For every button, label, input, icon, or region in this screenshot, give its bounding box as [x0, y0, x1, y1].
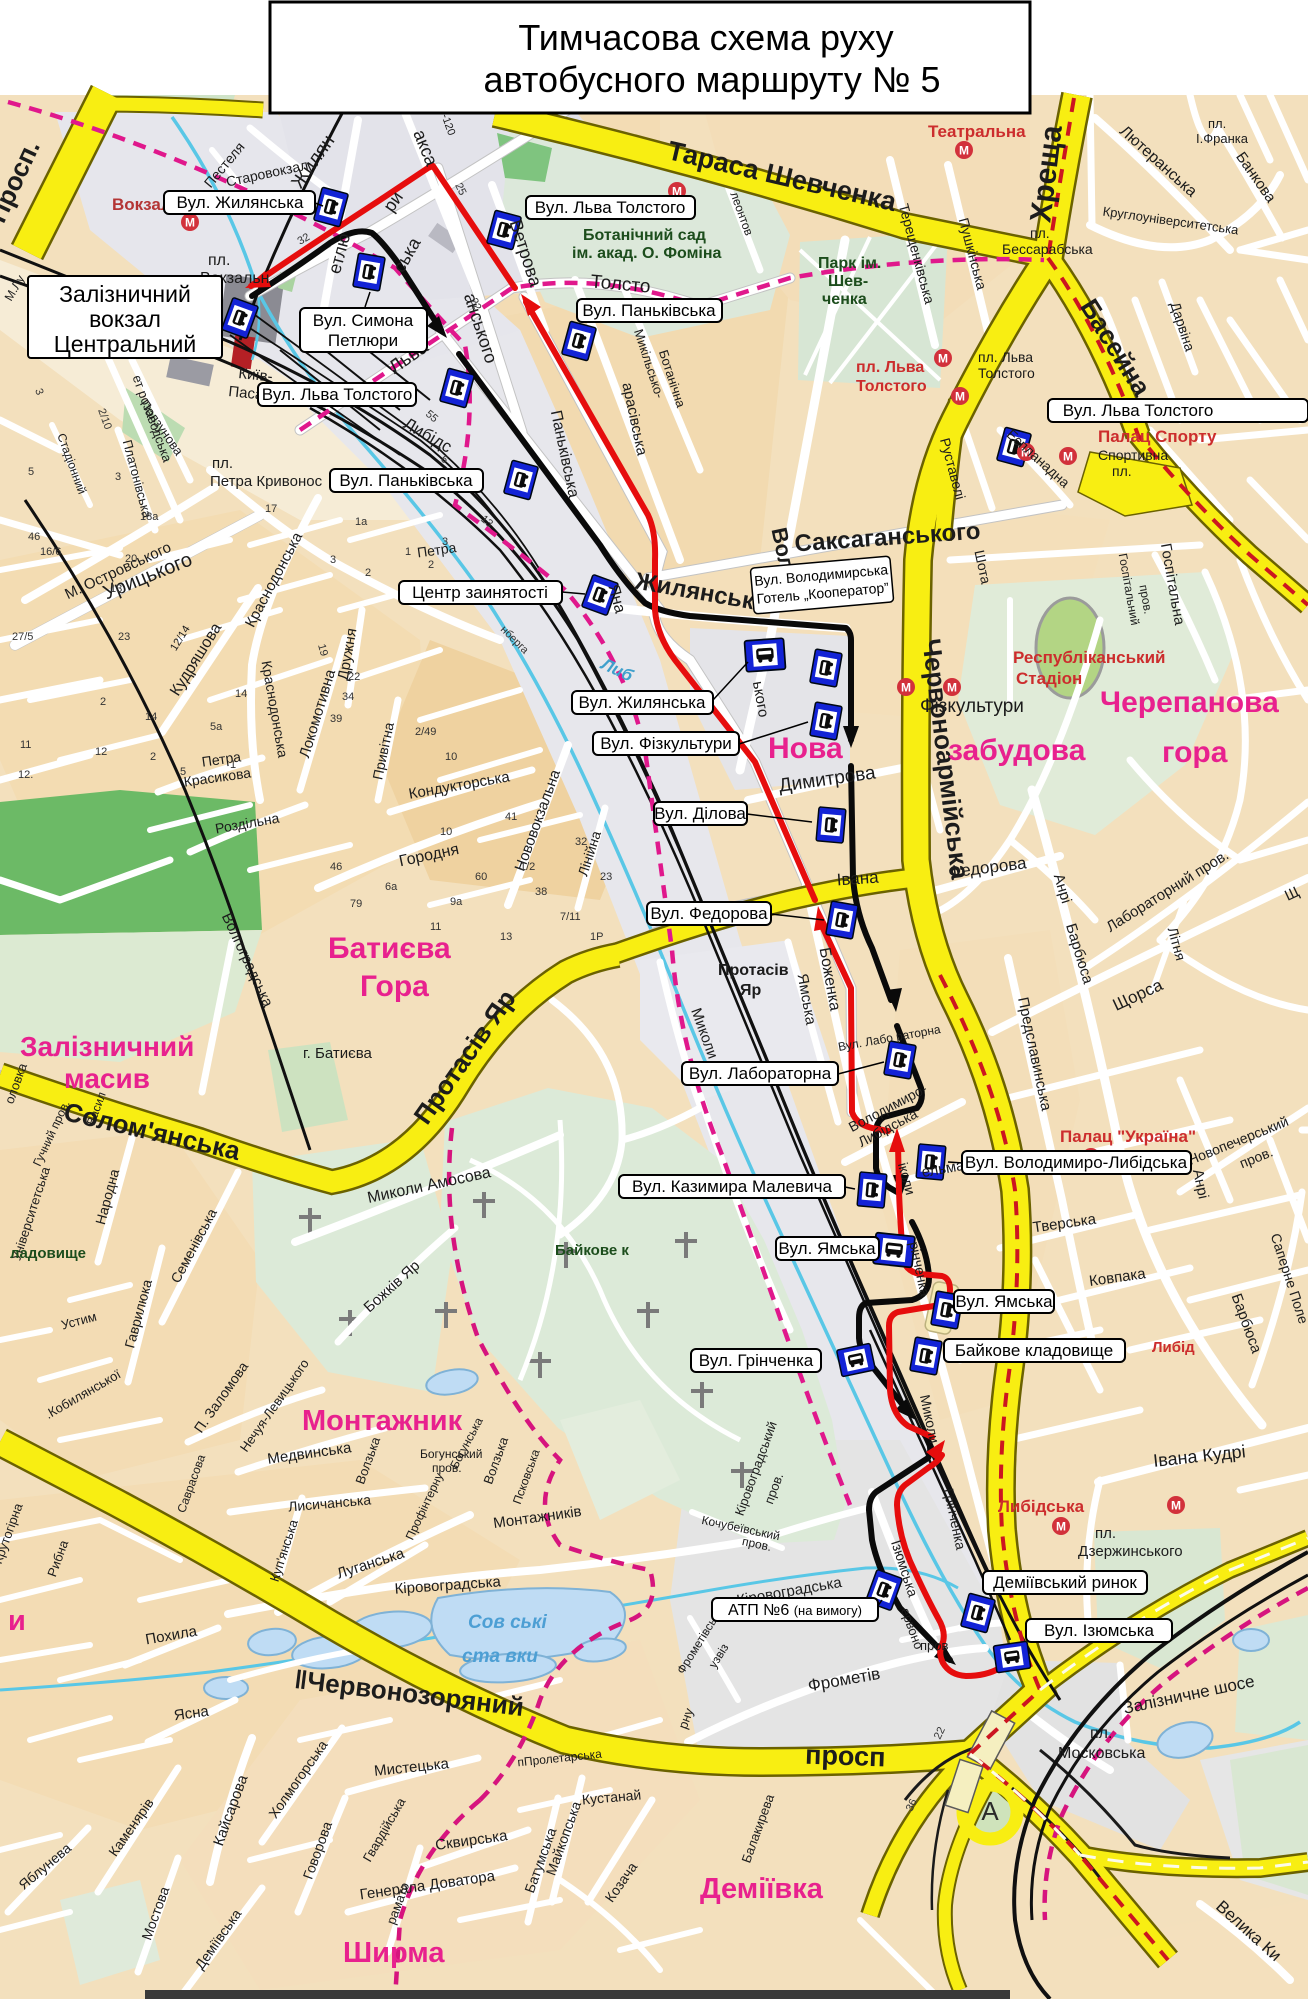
svg-text:АТП №6 (на вимогу): АТП №6 (на вимогу) [728, 1602, 862, 1619]
svg-text:ім. акад. О. Фоміна: ім. акад. О. Фоміна [572, 245, 722, 262]
svg-text:2/49: 2/49 [415, 726, 436, 738]
svg-text:Байкове кладовище: Байкове кладовище [955, 1341, 1113, 1360]
svg-text:10: 10 [445, 751, 457, 763]
svg-text:Толстого: Толстого [978, 365, 1035, 381]
svg-text:46: 46 [330, 861, 342, 873]
svg-text:Вул. Льва Толстого: Вул. Льва Толстого [262, 385, 413, 404]
svg-text:20: 20 [125, 553, 137, 565]
svg-text:ладовище: ладовище [10, 1245, 86, 1262]
svg-text:Черепанова: Черепанова [1100, 686, 1279, 719]
svg-text:Московська: Московська [1058, 1745, 1145, 1762]
svg-text:Монтажник: Монтажник [302, 1405, 463, 1437]
svg-text:Центр заинятості: Центр заинятості [412, 583, 548, 602]
svg-text:1/2: 1/2 [520, 861, 535, 873]
svg-text:Вул. Федорова: Вул. Федорова [650, 904, 768, 923]
svg-text:Либід: Либід [1152, 1339, 1195, 1356]
svg-text:пл.: пл. [208, 252, 230, 269]
svg-text:6а: 6а [385, 881, 398, 893]
svg-text:17: 17 [265, 503, 277, 515]
svg-text:1а: 1а [355, 516, 368, 528]
svg-text:Нова: Нова [768, 732, 843, 765]
svg-text:вокзал: вокзал [89, 306, 161, 332]
svg-text:34: 34 [342, 691, 354, 703]
svg-text:масив: масив [64, 1063, 150, 1094]
svg-text:Тимчасова схема руху: Тимчасова схема руху [518, 17, 893, 58]
svg-text:Театральна: Театральна [928, 122, 1026, 141]
svg-text:пров: пров [920, 1638, 948, 1653]
svg-text:Деміївка: Деміївка [700, 1873, 824, 1905]
svg-text:Вул. Ділова: Вул. Ділова [654, 804, 746, 823]
svg-text:Батиєва: Батиєва [328, 932, 451, 965]
svg-text:14: 14 [145, 711, 157, 723]
svg-text:1: 1 [230, 759, 236, 771]
svg-text:пл. Льва: пл. Льва [856, 359, 924, 376]
svg-text:Деміївський ринок: Деміївський ринок [993, 1573, 1137, 1592]
svg-text:32: 32 [575, 836, 587, 848]
svg-text:Парк ім.: Парк ім. [818, 255, 881, 272]
svg-text:автобусного маршруту № 5: автобусного маршруту № 5 [484, 59, 941, 100]
svg-text:12: 12 [95, 746, 107, 758]
svg-text:Гора: Гора [360, 970, 429, 1003]
svg-text:Вул. Жилянська: Вул. Жилянська [177, 193, 305, 212]
svg-text:9а: 9а [450, 896, 463, 908]
svg-text:Фізкультури: Фізкультури [920, 696, 1024, 717]
svg-text:5: 5 [180, 766, 186, 778]
svg-text:Либідська: Либідська [998, 1497, 1085, 1516]
svg-text:79: 79 [350, 898, 362, 910]
svg-text:пл.: пл. [212, 455, 233, 472]
svg-text:Петра Кривонос: Петра Кривонос [210, 473, 323, 490]
svg-text:10: 10 [440, 826, 452, 838]
svg-text:Шев-: Шев- [828, 273, 868, 290]
svg-text:Стадіон: Стадіон [1016, 669, 1082, 688]
svg-text:забудова: забудова [948, 734, 1086, 767]
svg-text:5: 5 [28, 466, 34, 478]
svg-text:Вул. Ямська: Вул. Ямська [778, 1239, 876, 1258]
svg-text:39: 39 [330, 713, 342, 725]
svg-text:Бессарабська: Бессарабська [1002, 241, 1093, 257]
svg-text:пл.: пл. [1095, 1525, 1116, 1542]
svg-text:ста вки: ста вки [462, 1646, 538, 1667]
svg-text:18а: 18а [140, 511, 159, 523]
svg-text:16/6: 16/6 [40, 546, 61, 558]
svg-text:Вул. Грінченка: Вул. Грінченка [699, 1351, 814, 1370]
svg-text:13: 13 [500, 931, 512, 943]
svg-text:Вул. Жилянська: Вул. Жилянська [579, 693, 707, 712]
svg-text:Вул. Ізюмська: Вул. Ізюмська [1044, 1621, 1155, 1640]
svg-text:3: 3 [442, 536, 448, 548]
svg-text:Вул. Паньківська: Вул. Паньківська [582, 301, 716, 320]
svg-text:І.Франка: І.Франка [1196, 131, 1249, 146]
svg-text:Залізничний: Залізничний [20, 1031, 194, 1062]
svg-text:и: и [8, 1605, 26, 1637]
svg-text:46: 46 [28, 531, 40, 543]
svg-text:2: 2 [365, 567, 371, 579]
svg-text:Вокзал: Вокзал [112, 195, 172, 214]
svg-text:просп: просп [805, 1740, 886, 1773]
svg-text:Петлюри: Петлюри [328, 331, 398, 350]
svg-text:38: 38 [535, 886, 547, 898]
svg-text:7/11: 7/11 [560, 911, 581, 923]
svg-text:г. Батиєва: г. Батиєва [303, 1045, 373, 1062]
svg-text:14: 14 [235, 688, 247, 700]
svg-text:1: 1 [405, 546, 411, 558]
svg-text:1Р: 1Р [590, 931, 603, 943]
svg-text:Вул. Володимиро-Либідська: Вул. Володимиро-Либідська [965, 1153, 1188, 1172]
svg-text:Вул. Фізкультури: Вул. Фізкультури [600, 734, 732, 753]
svg-text:гора: гора [1162, 736, 1228, 769]
svg-text:Залізничний: Залізничний [59, 281, 191, 307]
svg-text:Вул. Симона: Вул. Симона [313, 311, 414, 330]
svg-text:пл. Льва: пл. Льва [978, 349, 1033, 365]
svg-text:13: 13 [110, 583, 122, 595]
svg-text:22: 22 [348, 671, 360, 683]
svg-text:Сов ські: Сов ські [468, 1612, 548, 1633]
svg-text:Ширма: Ширма [343, 1937, 445, 1969]
svg-text:Вул. Паньківська: Вул. Паньківська [339, 471, 473, 490]
svg-text:60: 60 [475, 871, 487, 883]
svg-text:Вул. Льва Толстого: Вул. Льва Толстого [1063, 401, 1214, 420]
svg-text:Івана: Івана [836, 868, 880, 890]
svg-text:Вул. Лабораторна: Вул. Лабораторна [689, 1064, 832, 1083]
svg-text:12.: 12. [18, 769, 33, 781]
svg-text:Ботанічний сад: Ботанічний сад [583, 227, 706, 244]
svg-text:3: 3 [330, 554, 336, 566]
svg-text:27/5: 27/5 [12, 631, 33, 643]
svg-text:11: 11 [20, 739, 31, 751]
svg-text:Палац Спорту: Палац Спорту [1098, 427, 1217, 446]
svg-text:Байкове к: Байкове к [555, 1242, 629, 1259]
svg-text:Толстого: Толстого [856, 378, 927, 395]
svg-text:23: 23 [600, 871, 612, 883]
svg-text:Вул. Ямська: Вул. Ямська [955, 1292, 1053, 1311]
svg-text:41: 41 [505, 811, 517, 823]
svg-text:Спортивна: Спортивна [1098, 447, 1168, 463]
svg-text:2: 2 [100, 696, 106, 708]
svg-text:Вул. Льва Толстого: Вул. Льва Толстого [535, 198, 686, 217]
svg-text:А: А [981, 1796, 999, 1826]
svg-text:Дзержинського: Дзержинського [1078, 1543, 1183, 1560]
svg-text:Яр: Яр [740, 982, 762, 999]
svg-text:Палац "Україна": Палац "Україна" [1060, 1127, 1196, 1146]
svg-text:ченка: ченка [822, 291, 867, 308]
svg-text:Вул. Казимира Малевича: Вул. Казимира Малевича [632, 1177, 832, 1196]
svg-text:Республіканський: Республіканський [1013, 648, 1165, 667]
svg-text:пл.: пл. [1208, 116, 1226, 131]
svg-text:Протасів: Протасів [718, 962, 789, 979]
svg-text:23: 23 [118, 631, 130, 643]
svg-text:пл.: пл. [1090, 1725, 1112, 1742]
svg-text:2: 2 [150, 751, 156, 763]
svg-text:2: 2 [428, 559, 434, 571]
svg-text:3: 3 [115, 471, 121, 483]
svg-text:Центральний: Центральний [54, 331, 196, 357]
svg-text:5а: 5а [210, 721, 223, 733]
svg-text:пл.: пл. [1112, 463, 1132, 479]
svg-text:пл.: пл. [1030, 225, 1050, 241]
